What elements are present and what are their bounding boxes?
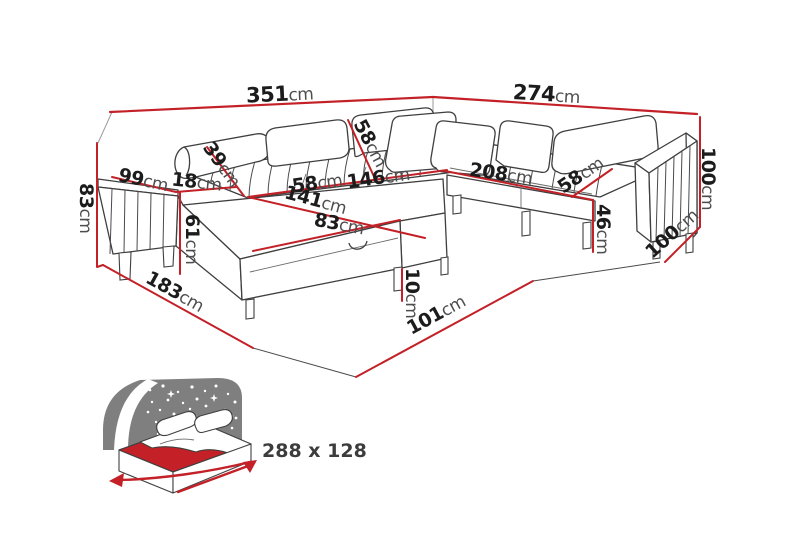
diagram-canvas: 351cm 274cm 83cm 99cm 18cm 39cm 61cm 58c…: [0, 0, 800, 533]
dim-seat-height: 46cm: [592, 204, 614, 254]
dim-back-total-width: 351cm: [246, 80, 314, 107]
dim-chaise-side-height: 61cm: [181, 214, 203, 264]
sleeping-area-size: 288 x 128: [262, 440, 367, 462]
sleeping-area-icon: 288 x 128: [103, 378, 367, 493]
dim-right-total-width: 274cm: [512, 80, 581, 108]
sofa-dimension-diagram: 351cm 274cm 83cm 99cm 18cm 39cm 61cm 58c…: [0, 0, 800, 533]
dim-right-arm-height: 100cm: [697, 147, 719, 210]
dim-left-wall-height: 83cm: [75, 183, 97, 233]
dimension-line-front-floor-width: [356, 281, 533, 377]
